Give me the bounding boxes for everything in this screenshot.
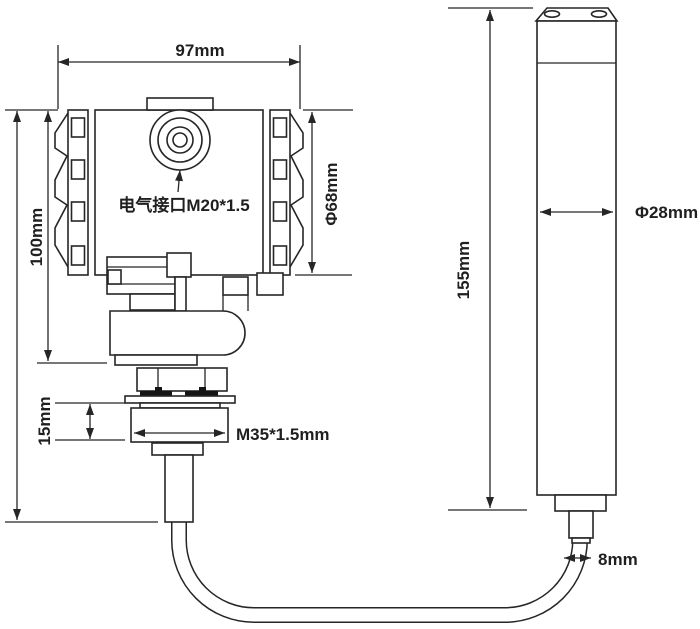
dimension-155mm: 155mm xyxy=(448,8,533,510)
drawing-canvas: 97mm 100mm Φ68mm 电气接口M20*1.5 15mm M35*1.… xyxy=(0,0,700,629)
connection-cable xyxy=(179,517,580,615)
housing-right-clamp xyxy=(270,110,303,275)
flange-plate xyxy=(125,396,235,403)
dim-label-cable-diameter: 8mm xyxy=(598,550,638,569)
collar xyxy=(152,443,203,455)
housing-left-clamp xyxy=(55,110,88,275)
dim-label-mounting-thread: M35*1.5mm xyxy=(236,425,330,444)
dim-label-top-width: 97mm xyxy=(175,41,224,60)
probe-body xyxy=(537,21,616,495)
dimension-15mm: 15mm xyxy=(35,396,125,445)
cable-gland xyxy=(569,511,593,538)
dimension-diagram: 97mm 100mm Φ68mm 电气接口M20*1.5 15mm M35*1.… xyxy=(0,0,700,629)
electrical-port-boss xyxy=(150,110,210,170)
dim-label-housing-height: 100mm xyxy=(27,208,46,267)
probe-neck xyxy=(555,495,606,511)
oval-manifold xyxy=(110,311,245,355)
process-connection xyxy=(125,368,235,522)
dim-label-probe-diameter: Φ28mm xyxy=(635,203,698,222)
transmitter-housing xyxy=(55,98,303,522)
dim-label-probe-length: 155mm xyxy=(454,241,473,300)
hex-nut xyxy=(137,368,227,391)
outlet-tube xyxy=(165,455,193,522)
level-probe xyxy=(536,8,617,543)
probe-top-hole-right xyxy=(592,11,607,17)
cable-gland-tip xyxy=(572,538,590,543)
electrical-interface-label: 电气接口M20*1.5 xyxy=(118,195,249,215)
threaded-section xyxy=(131,408,228,442)
dim-label-thread-length: 15mm xyxy=(35,396,54,445)
probe-top-hole-left xyxy=(545,11,560,17)
dim-label-housing-diameter: Φ68mm xyxy=(322,162,341,225)
port-base-plate xyxy=(147,98,213,110)
